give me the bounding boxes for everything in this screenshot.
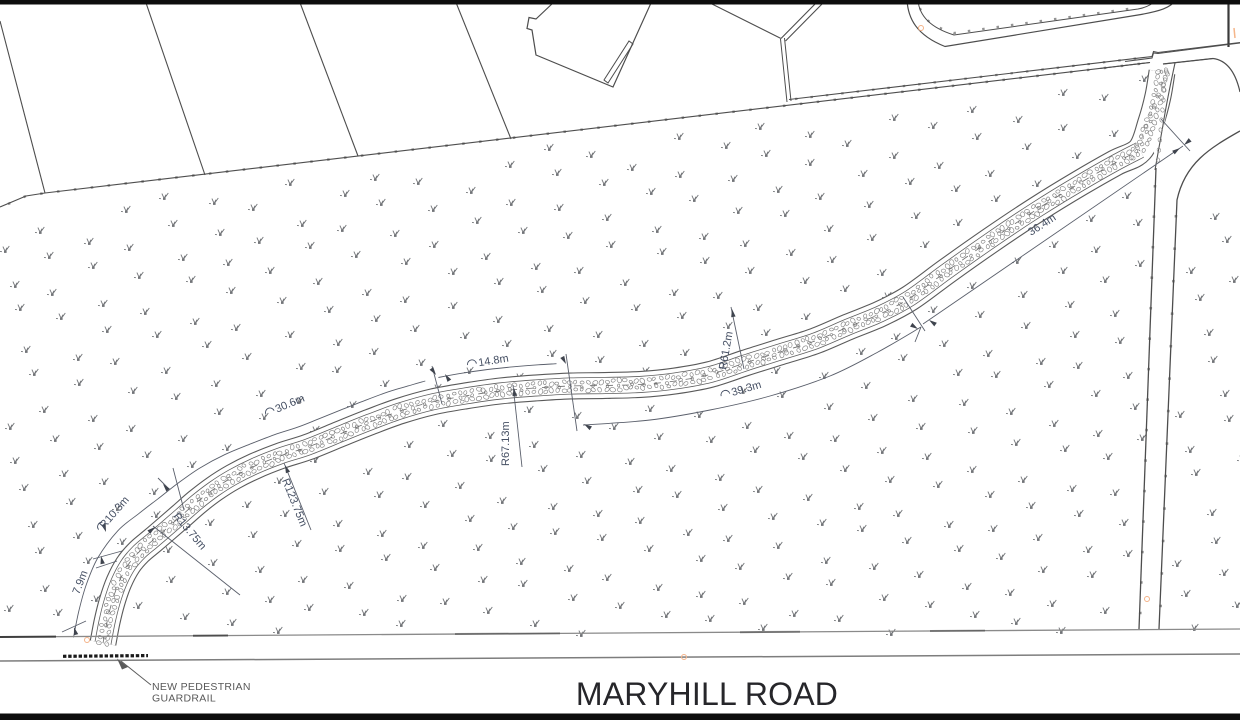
svg-text:R67.13m: R67.13m	[500, 421, 512, 466]
svg-text:NEW PEDESTRIAN: NEW PEDESTRIAN	[152, 681, 251, 693]
svg-text:GUARDRAIL: GUARDRAIL	[152, 693, 216, 705]
svg-text:MARYHILL ROAD: MARYHILL ROAD	[576, 676, 838, 712]
